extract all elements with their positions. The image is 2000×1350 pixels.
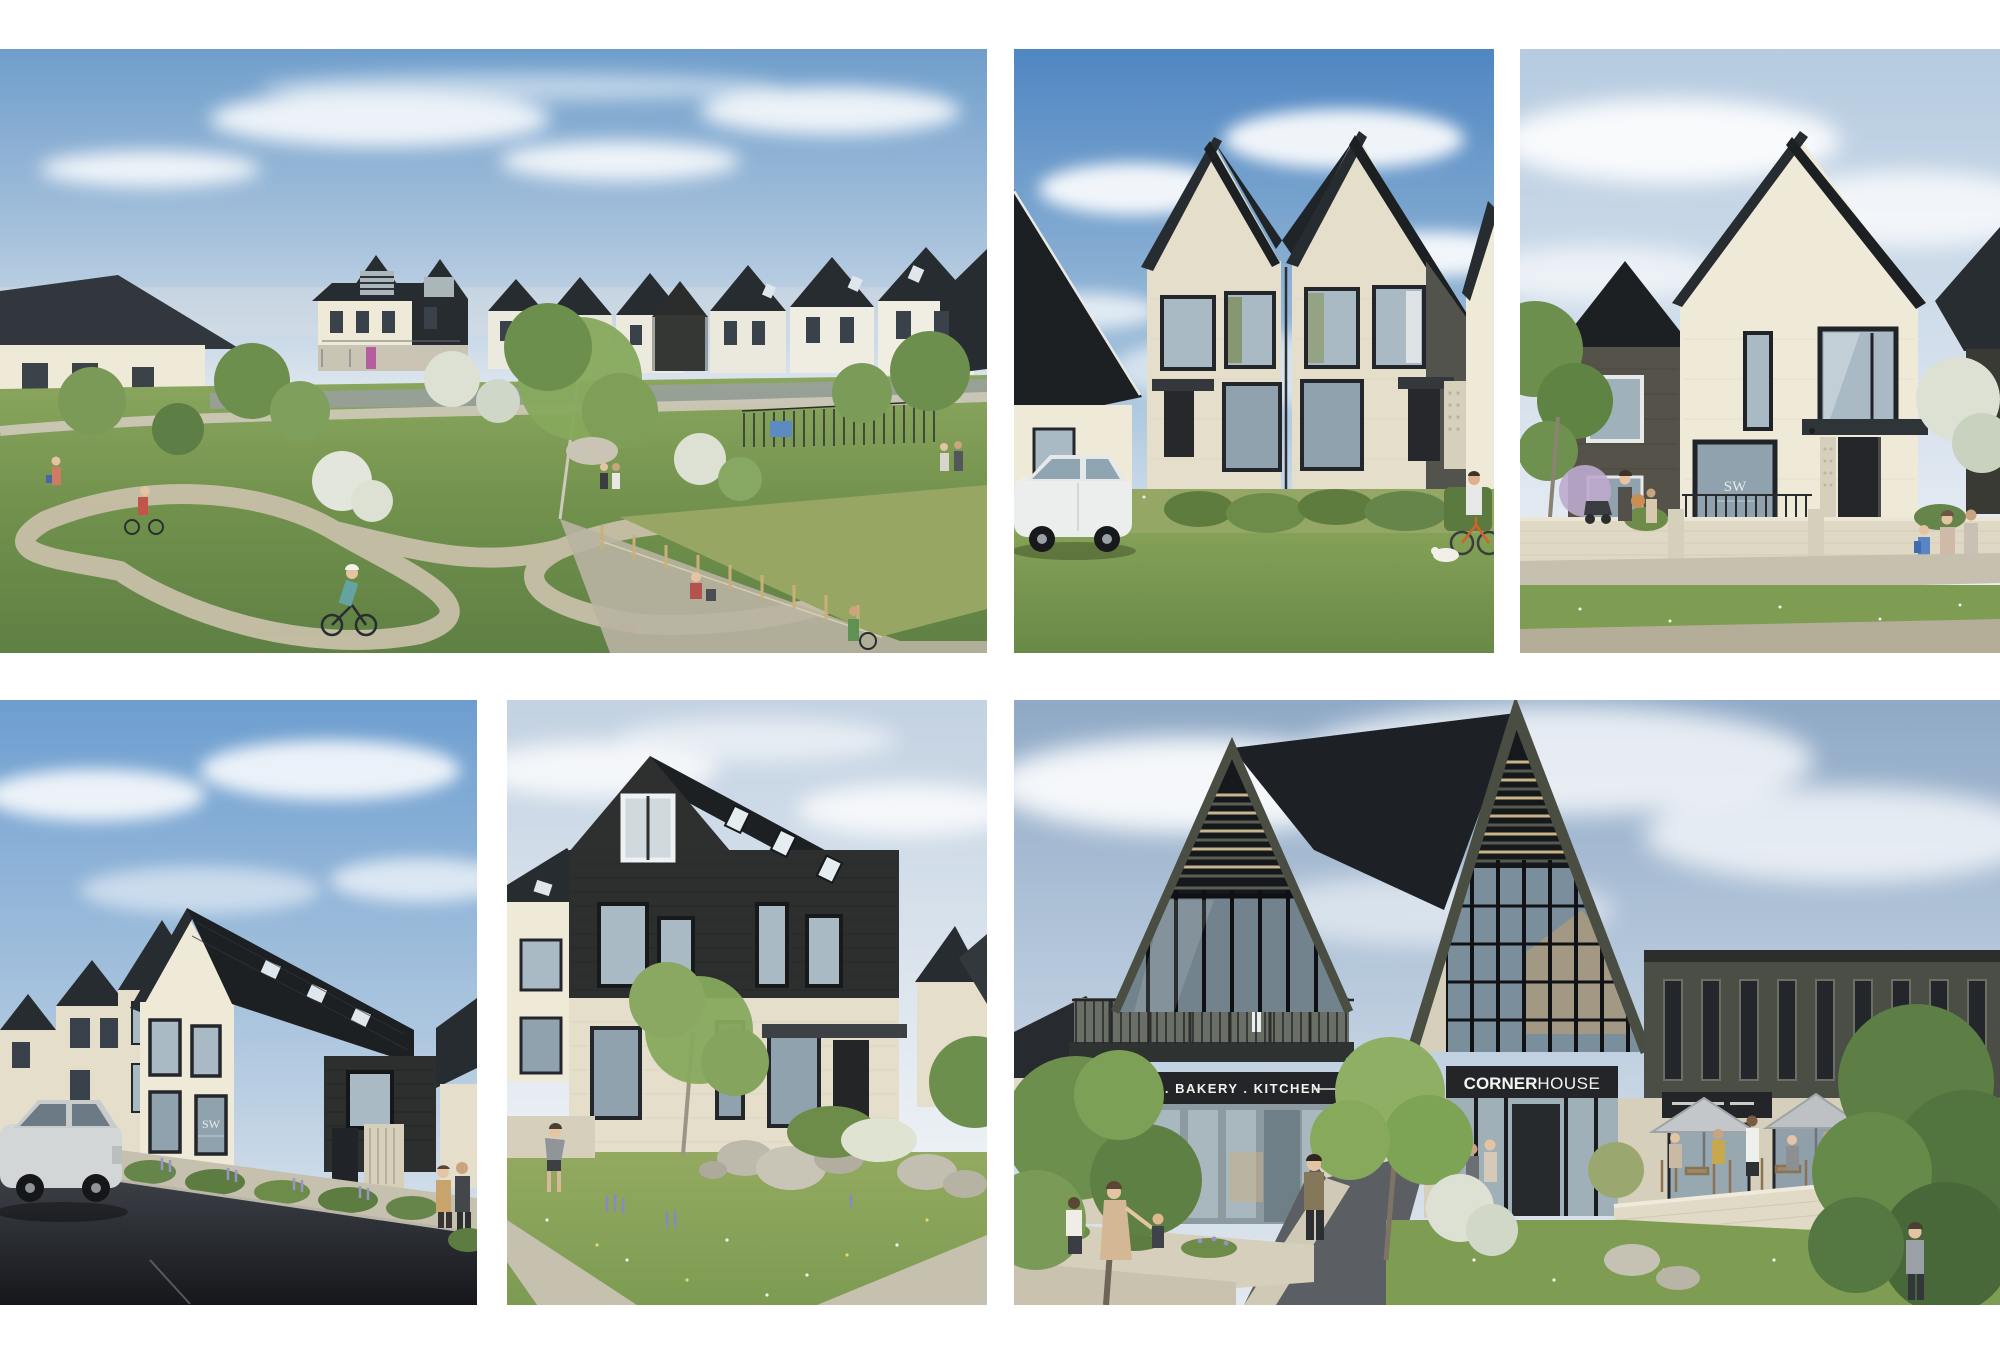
front-door (1408, 389, 1440, 461)
stroller (1584, 501, 1612, 515)
photo-cornerhouse-cafe: COFFEE . BAKERY . KITCHEN (1014, 700, 2000, 1305)
tall-window (1745, 333, 1771, 429)
backpack (1914, 541, 1921, 553)
boulder (1604, 1244, 1660, 1276)
photo-detached-house: SW (1520, 49, 2000, 653)
entrance-door (1512, 1104, 1560, 1216)
olive-tree (1588, 1142, 1644, 1198)
magenta-door (366, 347, 376, 369)
show-home-plaque: SW (202, 1117, 221, 1131)
figure-waiter (1746, 1128, 1759, 1166)
show-home-plaque: SW (1724, 479, 1747, 495)
cornerhouse-sign: CORNERHOUSE (1446, 1066, 1618, 1098)
white-flowering-bush (841, 1118, 917, 1162)
tan-bag (1631, 494, 1645, 508)
photo-black-clad-townhouse (507, 700, 987, 1305)
playground-slide (770, 421, 792, 437)
boulder (1656, 1266, 1700, 1290)
cornerhouse-sign-text: CORNERHOUSE (1464, 1074, 1601, 1093)
photo-semi-detached-pair (1014, 49, 1494, 653)
black-clad-house (655, 315, 705, 371)
boulder (566, 437, 618, 465)
foreground (1520, 553, 2000, 653)
door-canopy (1802, 419, 1928, 435)
entrance-door (332, 1128, 358, 1188)
photo-masterplan-park-view (0, 49, 987, 653)
wall-lamp (1809, 428, 1815, 434)
photo-terrace-parking-court: SW (0, 700, 477, 1305)
door-canopy (762, 1024, 907, 1038)
